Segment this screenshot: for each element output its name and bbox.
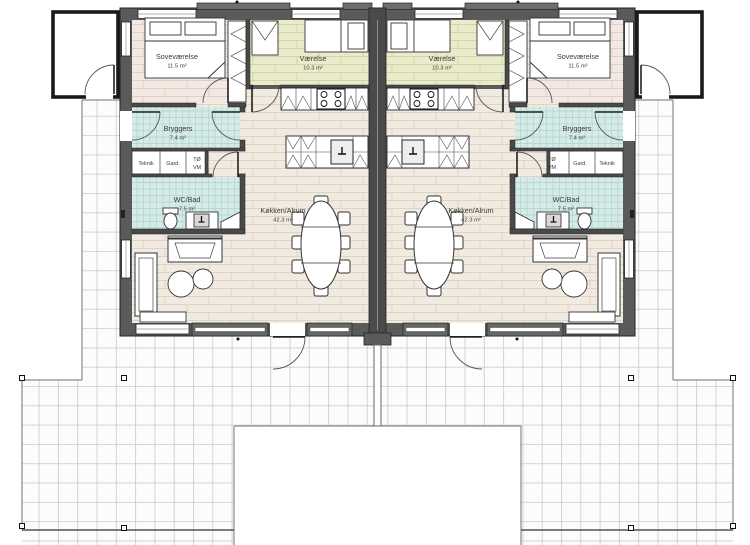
dimension-mark bbox=[236, 1, 239, 4]
room-label-bryggers-left: Bryggers bbox=[164, 124, 193, 133]
entry-door-opening bbox=[120, 111, 132, 141]
blind-box bbox=[197, 3, 290, 10]
sofa bbox=[168, 236, 222, 262]
party-wall-stub bbox=[364, 333, 391, 345]
shed-door-opening bbox=[86, 93, 113, 99]
coffee-table bbox=[168, 271, 194, 297]
terrace-door-opening bbox=[270, 323, 305, 336]
label-to-left: TØ bbox=[193, 157, 201, 163]
room-label-bryggers-right: Bryggers bbox=[563, 124, 592, 133]
room-area-kokken-left: 42.3 m² bbox=[273, 218, 293, 224]
kitchen-island bbox=[286, 136, 368, 168]
room-label-vaerelse-left: Værelse bbox=[300, 54, 327, 63]
vanity-sink bbox=[186, 212, 218, 229]
label-vm-left: VM bbox=[193, 165, 202, 171]
room-label-wc-bad-left: WC/Bad bbox=[174, 195, 201, 204]
single-bed bbox=[305, 20, 368, 52]
room-label-sovevaerelse-right: Soveværelse bbox=[557, 52, 599, 61]
label-teknik-right: Teknik bbox=[599, 161, 615, 167]
sideboard bbox=[140, 312, 186, 322]
label-garderobe-left: Gard. bbox=[166, 161, 179, 167]
shed bbox=[53, 12, 118, 99]
floor-plan-canvas: Soveværelse 11.5 m² Værelse 10.3 m² Bryg… bbox=[0, 0, 750, 545]
terrace-divider-fence bbox=[374, 345, 381, 426]
cooktop bbox=[317, 89, 345, 109]
room-area-sovevaerelse-right: 11.5 m² bbox=[568, 64, 587, 70]
dimension-mark bbox=[237, 338, 240, 341]
room-area-wc-bad-right: 7.5 m² bbox=[558, 207, 574, 213]
side-table bbox=[193, 269, 213, 289]
room-label-kokken-left: Køkken/Alrum bbox=[260, 206, 305, 215]
blind-box bbox=[343, 3, 372, 10]
room-area-bryggers-right: 7.4 m² bbox=[569, 136, 585, 142]
label-to-right: TØ bbox=[548, 157, 556, 163]
wardrobe-sovevaerelse bbox=[228, 21, 246, 102]
unit-left bbox=[20, 1, 378, 545]
room-area-bryggers-left: 7.4 m² bbox=[170, 136, 186, 142]
room-area-sovevaerelse-left: 11.5 m² bbox=[167, 64, 186, 70]
unit-right-mirrored bbox=[378, 1, 736, 545]
room-label-wc-bad-right: WC/Bad bbox=[553, 195, 580, 204]
label-vm-right: VM bbox=[548, 165, 557, 171]
toilet bbox=[163, 208, 178, 229]
daybed bbox=[135, 253, 157, 316]
wardrobe-vaerelse bbox=[252, 21, 278, 55]
radiator bbox=[121, 210, 125, 218]
label-teknik-left: Teknik bbox=[138, 161, 154, 167]
floor-plan-page: Soveværelse 11.5 m² Værelse 10.3 m² Bryg… bbox=[0, 0, 750, 545]
room-label-vaerelse-right: Værelse bbox=[429, 54, 456, 63]
room-area-kokken-right: 42.3 m² bbox=[461, 218, 481, 224]
room-area-vaerelse-right: 10.3 m² bbox=[432, 66, 452, 72]
room-label-kokken-right: Køkken/Alrum bbox=[448, 206, 493, 215]
room-label-sovevaerelse-left: Soveværelse bbox=[156, 52, 198, 61]
label-garderobe-right: Gard. bbox=[573, 161, 586, 167]
room-area-wc-bad-left: 7.5 m² bbox=[179, 207, 195, 213]
kitchen-counter bbox=[281, 88, 368, 110]
room-area-vaerelse-left: 10.3 m² bbox=[303, 66, 323, 72]
